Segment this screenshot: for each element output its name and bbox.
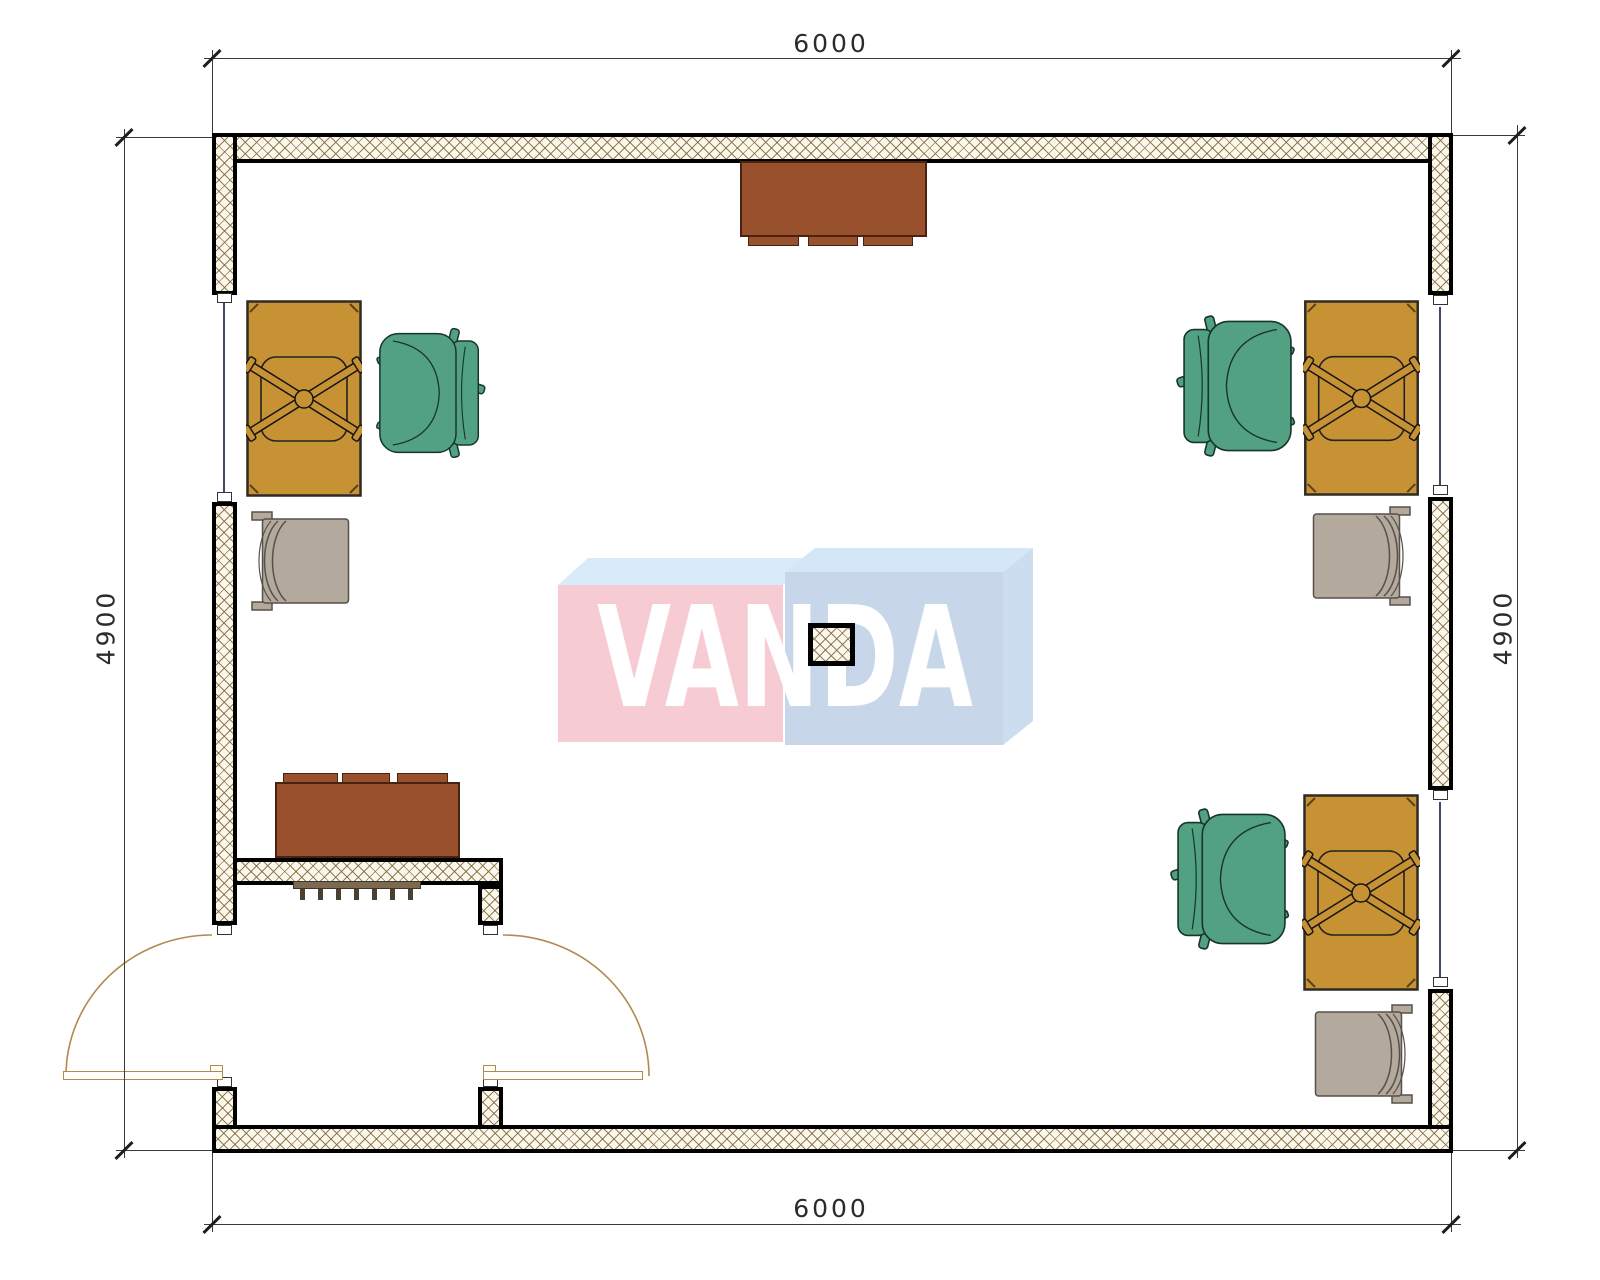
- lounge-chair-bottom-right: [1314, 1002, 1414, 1106]
- desk-top-left: [246, 300, 362, 497]
- desk-bottom-right: [1302, 794, 1420, 991]
- radiator-bar: [293, 881, 421, 889]
- door-leaf-left-hinge: [210, 1065, 223, 1072]
- sideboard-top-tab-1: [748, 236, 799, 246]
- floor-plan-canvas: VANDA: [0, 0, 1600, 1280]
- dim-label-right: 4900: [1491, 578, 1516, 678]
- desk-top-right: [1303, 300, 1420, 496]
- door-leaf-left: [63, 1071, 223, 1080]
- dim-line-bottom: [204, 1224, 1461, 1225]
- radiator-fins: [300, 889, 415, 900]
- dim-line-top: [204, 58, 1461, 59]
- sideboard-top-tab-2: [808, 236, 858, 246]
- dim-ext-left-bottom: [116, 1150, 212, 1151]
- dim-ext-top-left: [212, 50, 213, 133]
- office-chair-top-right: [1176, 315, 1297, 457]
- dim-ext-left-top: [116, 137, 212, 138]
- lounge-chair-top-right: [1312, 503, 1412, 609]
- sideboard-top-tab-3: [863, 236, 913, 246]
- sideboard-bottom-left: [275, 782, 460, 858]
- door-swing-arc-left: [66, 935, 212, 1076]
- structural-column: [808, 623, 855, 666]
- door-leaf-right-hinge: [483, 1065, 496, 1072]
- office-chair-top-left: [370, 328, 490, 458]
- door-leaf-right: [483, 1071, 643, 1080]
- dim-label-left: 4900: [94, 578, 119, 678]
- door-swing-arc-right: [503, 935, 649, 1076]
- dim-line-left: [124, 129, 125, 1158]
- lounge-chair-top-left: [250, 508, 350, 614]
- dim-ext-top-right: [1451, 50, 1452, 133]
- dim-label-top: 6000: [781, 31, 881, 56]
- sideboard-top-center: [740, 161, 927, 237]
- office-chair-bottom-right: [1170, 808, 1291, 950]
- dim-label-bottom: 6000: [781, 1196, 881, 1221]
